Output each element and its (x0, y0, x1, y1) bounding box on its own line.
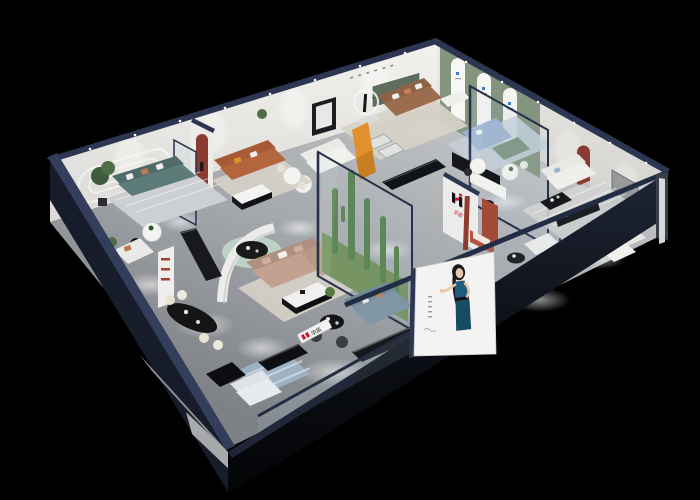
round-coffee-table (143, 223, 162, 242)
shrub (325, 287, 335, 297)
logo-bar (452, 192, 455, 204)
panel-text-dash (455, 78, 461, 79)
downlight-dot (609, 142, 612, 145)
wall-mirror (316, 102, 332, 130)
dish (196, 320, 200, 324)
dining-stool (199, 333, 209, 343)
downlight-dot (89, 148, 92, 151)
light-pool (278, 218, 322, 238)
blue-logo-mark (456, 72, 459, 75)
downlight-dot (573, 122, 576, 125)
downlight-dot (314, 79, 317, 82)
table-plant (149, 226, 154, 231)
shelf-red-accent (161, 258, 170, 261)
table-decor (255, 249, 258, 252)
black-chair (464, 168, 472, 176)
downlight-dot (134, 134, 137, 137)
downlight-dot (269, 93, 272, 96)
planter (98, 198, 107, 206)
dish (184, 310, 188, 314)
foliage (101, 161, 115, 175)
east-corner-lightbox (659, 178, 665, 244)
showroom-3d-render: 华凯 (0, 0, 700, 500)
downlight-dot (224, 107, 227, 110)
wall-glow (280, 89, 308, 129)
dining-chair (165, 295, 175, 305)
shelf-red-accent (161, 278, 170, 281)
isometric-scene: 华凯 (0, 0, 700, 500)
downlight-dot (645, 162, 648, 165)
text-dash (428, 301, 432, 302)
text-dash (428, 306, 432, 307)
downlight-dot (465, 61, 468, 64)
table-decor (557, 196, 560, 199)
table-decor (300, 290, 305, 294)
round-table (283, 167, 301, 185)
logo-bar (459, 196, 462, 208)
table-decor (246, 246, 250, 250)
downlight-dot (404, 52, 407, 55)
chair (298, 182, 306, 190)
table-decor (550, 198, 554, 202)
blue-logo-mark (482, 87, 485, 90)
poster-lightbox (409, 252, 496, 358)
text-dash (428, 316, 432, 317)
round-table (470, 158, 486, 174)
table-decor (335, 321, 338, 324)
text-dash (428, 311, 432, 312)
dining-chair (177, 290, 187, 300)
blue-logo-mark (508, 102, 511, 105)
chair (277, 164, 285, 172)
downlight-dot (501, 81, 504, 84)
downlight-dot (359, 65, 362, 68)
niche-sculpture (200, 162, 204, 171)
text-dash (428, 296, 432, 297)
arch-panel (451, 58, 465, 122)
downlight-dot (537, 101, 540, 104)
plant (257, 109, 267, 119)
dining-stool (213, 340, 223, 350)
downlight-dot (179, 120, 182, 123)
shelf-red-accent (161, 268, 170, 271)
